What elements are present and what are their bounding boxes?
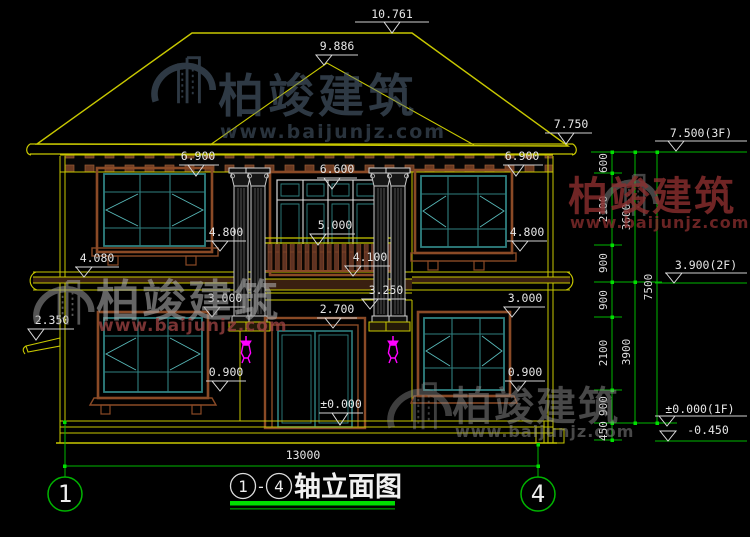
svg-text:0.900: 0.900 — [508, 365, 543, 379]
elevation-drawing: 10.761 9.886 7.750 6.900 6.900 6.600 5.0… — [0, 0, 750, 537]
svg-text:0.900: 0.900 — [209, 365, 244, 379]
axis-left-number: 1 — [58, 480, 72, 508]
svg-text:9.886: 9.886 — [320, 39, 355, 53]
svg-text:4.080: 4.080 — [80, 251, 115, 265]
svg-text:6.600: 6.600 — [320, 162, 355, 176]
title-axis-to: 4 — [274, 477, 284, 496]
svg-text:4.800: 4.800 — [510, 225, 545, 239]
svg-text:-0.450: -0.450 — [687, 423, 729, 437]
dim-seg-900a: 900 — [597, 253, 610, 273]
svg-text:7.500(3F): 7.500(3F) — [670, 126, 732, 140]
watermark-right: 柏竣建筑 www.baijunjz.com — [568, 174, 749, 232]
dim-seg-900b: 900 — [597, 290, 610, 310]
title-underline-2 — [230, 508, 395, 510]
svg-text:5.000: 5.000 — [318, 218, 353, 232]
svg-text:6.900: 6.900 — [505, 149, 540, 163]
svg-text:±0.000(1F): ±0.000(1F) — [665, 402, 734, 416]
watermark-brand: 柏竣建筑 — [218, 69, 418, 123]
svg-text:3.250: 3.250 — [369, 283, 404, 297]
dim-seg-2100b: 2100 — [597, 340, 610, 367]
svg-text:2.350: 2.350 — [35, 313, 70, 327]
svg-text:3.000: 3.000 — [508, 291, 543, 305]
dim-floor-3900: 3900 — [620, 339, 633, 366]
title-underline — [230, 501, 395, 506]
title-dash: - — [256, 477, 266, 496]
title-text: 轴立面图 — [294, 471, 402, 503]
dim-total-7500: 7500 — [642, 274, 655, 301]
svg-text:2.700: 2.700 — [320, 302, 355, 316]
svg-text:7.750: 7.750 — [554, 117, 589, 131]
svg-text:10.761: 10.761 — [371, 7, 413, 21]
dim-seg-600: 600 — [597, 153, 610, 173]
drawing-title: 1 - 4 轴立面图 — [230, 471, 402, 510]
overall-width-dim: 13000 — [286, 448, 321, 462]
title-axis-from: 1 — [238, 477, 248, 496]
watermark-url: www.baijunjz.com — [455, 422, 634, 441]
svg-text:±0.000: ±0.000 — [320, 397, 362, 411]
watermark-url: www.baijunjz.com — [98, 316, 288, 336]
watermark-url: www.baijunjz.com — [570, 213, 749, 232]
svg-text:4.800: 4.800 — [209, 225, 244, 239]
watermark-url: www.baijunjz.com — [220, 121, 446, 143]
svg-text:4.100: 4.100 — [353, 250, 388, 264]
svg-text:6.900: 6.900 — [181, 149, 216, 163]
svg-text:3.900(2F): 3.900(2F) — [675, 258, 737, 272]
axis-right-number: 4 — [531, 480, 545, 508]
